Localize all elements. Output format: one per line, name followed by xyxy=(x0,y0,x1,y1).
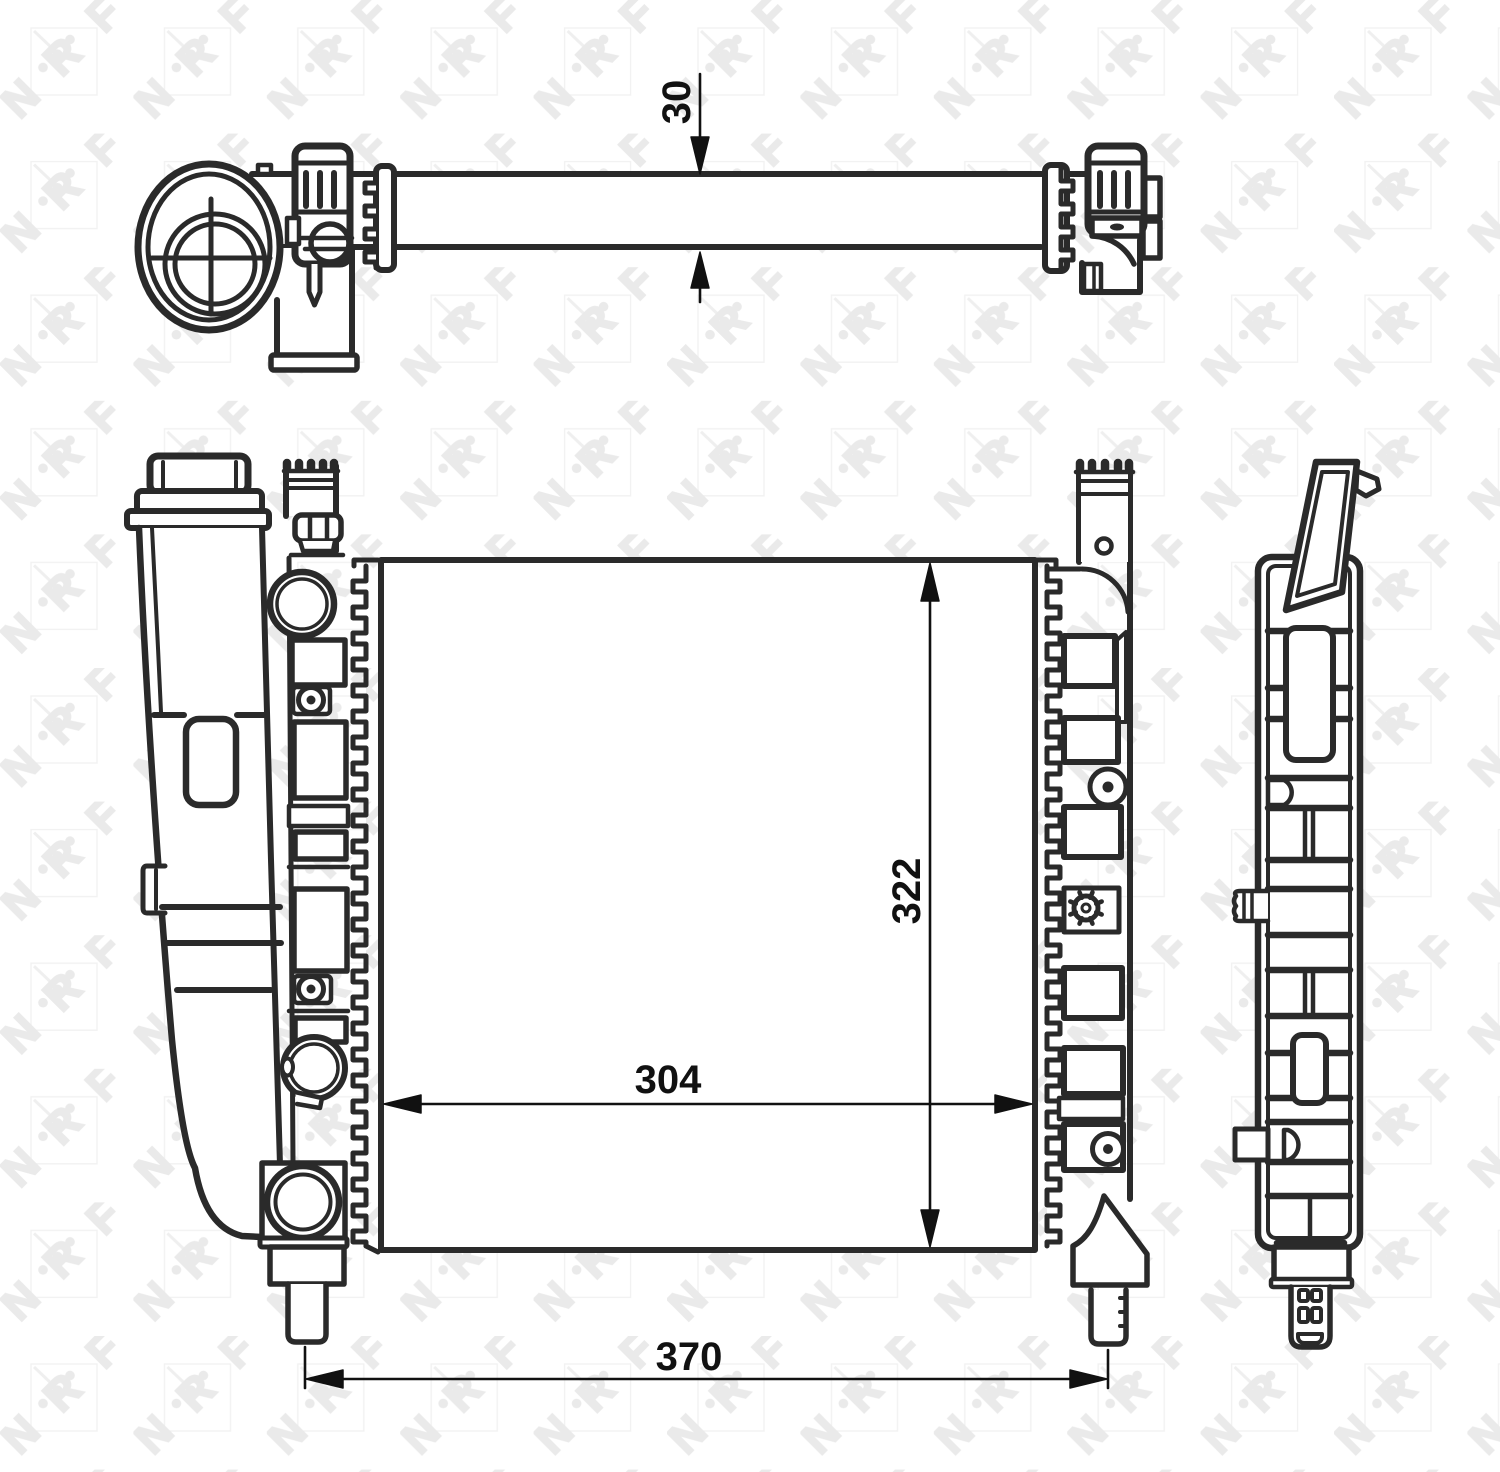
svg-text:370: 370 xyxy=(656,1335,723,1379)
svg-text:322: 322 xyxy=(885,858,929,925)
svg-text:304: 304 xyxy=(635,1058,702,1102)
svg-text:30: 30 xyxy=(655,80,699,125)
